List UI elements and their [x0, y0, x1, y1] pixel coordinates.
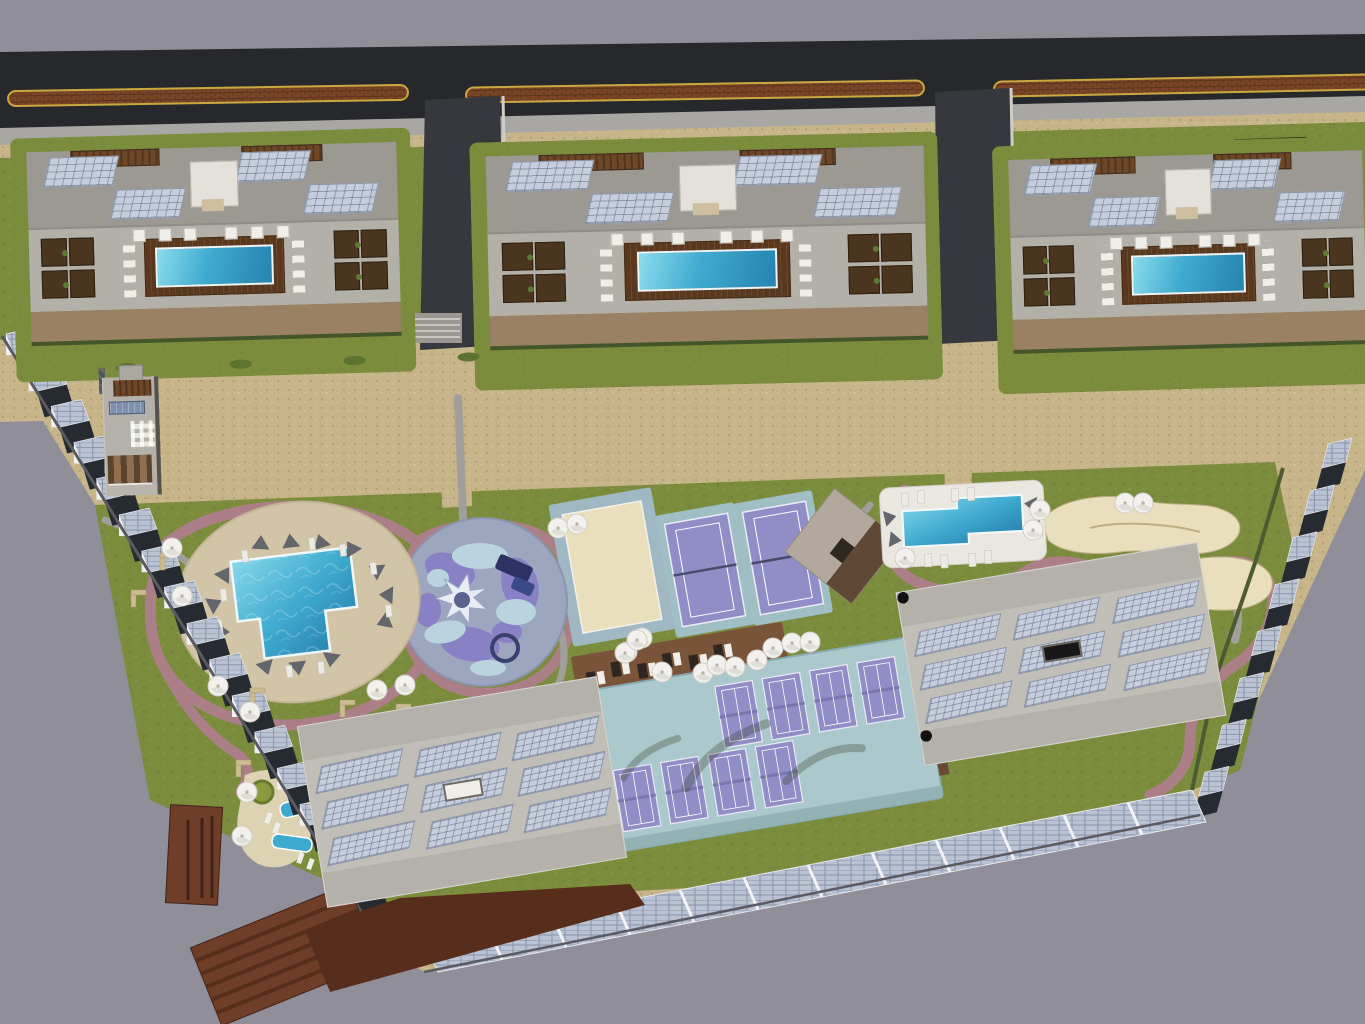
planter — [355, 274, 361, 280]
solar-array — [327, 820, 415, 867]
cabana — [720, 230, 733, 243]
rooftop-solar-panel — [109, 401, 145, 415]
lounge-seat — [69, 238, 95, 267]
lounge-seat — [881, 233, 912, 262]
lounger-column — [123, 237, 137, 297]
planter — [62, 250, 68, 256]
cabana — [1198, 234, 1211, 247]
cabana — [750, 230, 763, 243]
lounge-seat — [1050, 277, 1075, 306]
cabana — [225, 226, 238, 239]
cabana — [1248, 233, 1261, 246]
solar-array — [234, 150, 311, 182]
lounger-column — [799, 236, 812, 296]
lounge-cluster — [847, 232, 914, 298]
cabana — [184, 227, 197, 240]
cabana — [781, 229, 794, 242]
lounge-seat — [361, 229, 387, 258]
planter — [354, 242, 360, 248]
roof-hatch — [1176, 207, 1198, 220]
terrace-floor — [106, 484, 157, 496]
rooftop-pool — [1131, 252, 1245, 295]
buildings-layer — [0, 0, 1365, 1024]
solar-array — [505, 160, 595, 192]
rooftop-pool — [637, 248, 778, 291]
lounge-seat — [535, 242, 566, 271]
solar-array — [1088, 196, 1162, 228]
lounge-cluster — [501, 240, 568, 306]
planter — [1323, 282, 1329, 288]
pool-deck-zone — [1010, 228, 1365, 320]
cabana — [641, 232, 654, 245]
south-west-building — [297, 676, 627, 908]
cabana — [1134, 236, 1147, 249]
lounger-column — [599, 241, 612, 301]
solar-array — [732, 154, 822, 186]
roof-hatch — [202, 199, 225, 212]
lounge-seat — [882, 265, 913, 294]
planter — [63, 282, 69, 288]
solar-array — [1272, 191, 1346, 223]
planter — [1043, 258, 1049, 264]
lounge-seat — [1328, 238, 1353, 267]
lounge-seat — [70, 270, 96, 299]
solar-array — [584, 192, 674, 224]
townhouse-unit — [102, 376, 162, 496]
lounge-seat — [362, 261, 388, 290]
pool-deck-zone — [28, 220, 400, 312]
lounge-cluster — [1021, 244, 1076, 309]
cabana — [250, 226, 263, 239]
pool-deck-zone — [487, 224, 927, 317]
lounger-column — [1262, 241, 1276, 301]
cabana — [1223, 234, 1236, 247]
lounger-column — [1101, 245, 1115, 305]
rooftop — [486, 146, 926, 235]
site-plan-canvas — [0, 0, 1365, 1024]
solar-array — [1023, 164, 1097, 196]
solar-array — [110, 188, 187, 220]
solar-array — [426, 803, 514, 850]
lounge-cluster — [332, 228, 389, 294]
solar-array — [812, 186, 902, 218]
solar-array — [42, 156, 119, 188]
lounge-seat — [1329, 270, 1354, 299]
solar-array — [1207, 158, 1281, 190]
solar-array — [302, 182, 379, 214]
apartment-block-3 — [1007, 149, 1365, 365]
lounger-column — [291, 233, 305, 293]
apartment-block-1 — [25, 141, 402, 353]
lounge-cluster — [1301, 236, 1356, 301]
lounge-seat — [536, 274, 567, 303]
cabana — [276, 225, 289, 238]
cabana — [671, 232, 684, 245]
rooftop — [26, 142, 398, 230]
apartment-block-2 — [485, 145, 930, 362]
rooftop-pool — [155, 244, 274, 287]
solar-array — [524, 787, 612, 834]
cabana — [610, 233, 623, 246]
pergola — [113, 379, 151, 396]
planter — [1322, 250, 1328, 256]
cabana — [158, 228, 171, 241]
lounge-seat — [1049, 245, 1074, 274]
rooftop — [1008, 150, 1364, 238]
cabana — [1159, 235, 1172, 248]
spa-tub — [897, 591, 910, 604]
spa-tub — [920, 730, 933, 743]
ac-units — [130, 420, 155, 447]
lounge-cluster — [40, 236, 97, 302]
south-east-building — [896, 542, 1227, 766]
roof-hatch — [693, 203, 720, 216]
planter — [1044, 290, 1050, 296]
townhouse-balcony — [107, 454, 152, 485]
